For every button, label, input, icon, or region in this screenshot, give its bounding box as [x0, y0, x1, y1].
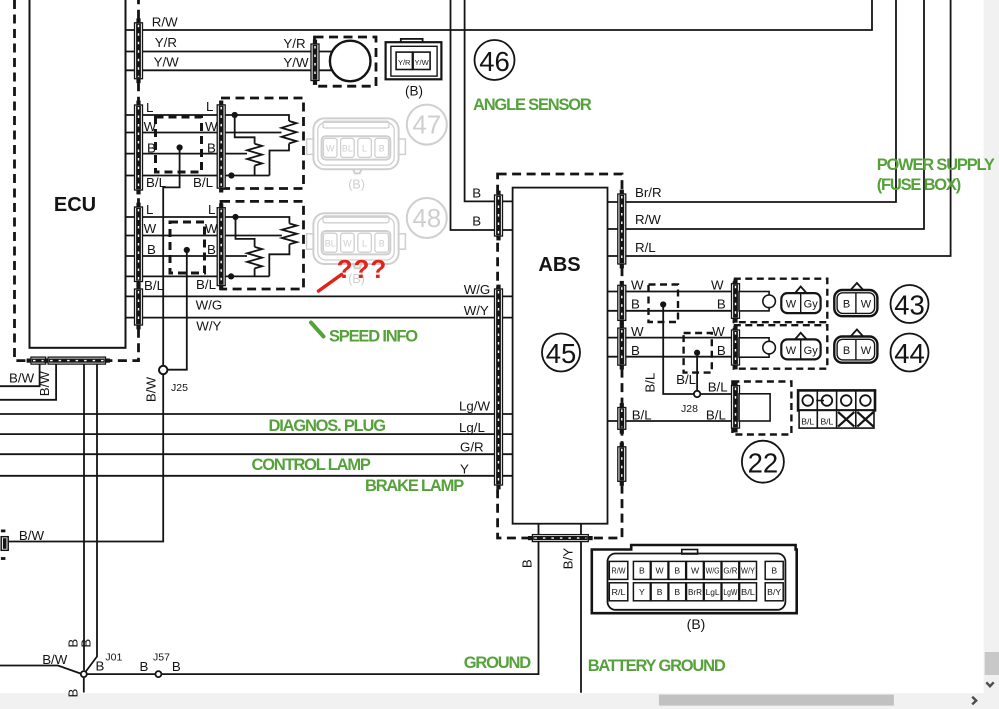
svg-text:W: W — [712, 324, 725, 339]
svg-text:B: B — [717, 343, 726, 358]
svg-text:G/R: G/R — [460, 440, 484, 455]
svg-text:B/L: B/L — [643, 373, 658, 393]
svg-text:W/G: W/G — [464, 282, 491, 297]
svg-text:B/W: B/W — [42, 652, 68, 667]
svg-text:W: W — [691, 566, 700, 576]
svg-text:ABS: ABS — [538, 254, 580, 276]
svg-text:B: B — [207, 242, 216, 257]
svg-text:B: B — [674, 566, 680, 576]
svg-text:ANGLE SENSOR: ANGLE SENSOR — [473, 96, 592, 114]
svg-text:(B): (B) — [405, 84, 423, 99]
svg-text:B: B — [172, 659, 181, 674]
svg-text:B/W: B/W — [19, 528, 45, 543]
svg-text:W: W — [144, 119, 157, 134]
svg-text:W: W — [326, 144, 335, 154]
svg-text:BATTERY GROUND: BATTERY GROUND — [588, 657, 726, 675]
svg-text:L: L — [362, 239, 367, 249]
svg-text:44: 44 — [894, 338, 925, 369]
svg-text:B: B — [147, 242, 156, 257]
svg-text:B/Y: B/Y — [560, 548, 575, 570]
svg-text:W: W — [861, 299, 872, 311]
svg-text:B: B — [140, 659, 149, 674]
svg-text:B: B — [843, 299, 850, 311]
svg-text:B/L: B/L — [708, 380, 728, 395]
svg-text:B: B — [379, 144, 385, 154]
svg-text:W/G: W/G — [706, 566, 720, 576]
svg-text:(B): (B) — [348, 177, 365, 191]
svg-text:B: B — [207, 141, 216, 156]
svg-text:B/L: B/L — [801, 417, 814, 427]
svg-text:B: B — [657, 587, 663, 597]
svg-text:R/W: R/W — [635, 212, 661, 227]
svg-text:B: B — [66, 688, 81, 697]
svg-text:W: W — [786, 345, 797, 357]
svg-text:Gy: Gy — [804, 299, 819, 311]
svg-text:B: B — [519, 559, 534, 568]
svg-text:B/W: B/W — [37, 371, 52, 397]
svg-text:43: 43 — [894, 289, 925, 320]
svg-text:B: B — [717, 297, 726, 312]
svg-text:CONTROL LAMP: CONTROL LAMP — [252, 456, 371, 474]
svg-text:L: L — [146, 202, 153, 217]
svg-text:B: B — [379, 239, 385, 249]
svg-text:BRAKE LAMP: BRAKE LAMP — [365, 477, 464, 495]
svg-text:Y/W: Y/W — [154, 55, 180, 70]
svg-text:Y: Y — [639, 587, 645, 597]
svg-text:Y/W: Y/W — [283, 55, 309, 70]
svg-text:Br/R: Br/R — [635, 185, 662, 200]
svg-text:L: L — [146, 100, 153, 115]
svg-text:B: B — [96, 659, 105, 674]
svg-text:W: W — [711, 278, 724, 293]
svg-text:W/G: W/G — [196, 298, 223, 313]
svg-text:B/L: B/L — [193, 175, 213, 190]
svg-text:B/W: B/W — [144, 376, 159, 402]
svg-text:B: B — [639, 566, 645, 576]
svg-text:B/L: B/L — [706, 408, 726, 423]
svg-text:LgW: LgW — [723, 587, 738, 597]
svg-text:BL: BL — [342, 144, 353, 154]
svg-text:W: W — [205, 221, 218, 236]
svg-text:B: B — [472, 186, 481, 201]
svg-text:B/W: B/W — [9, 370, 35, 385]
svg-text:22: 22 — [748, 448, 779, 479]
svg-text:L: L — [362, 144, 367, 154]
svg-text:G/R: G/R — [723, 566, 737, 576]
svg-text:B/Y: B/Y — [767, 587, 781, 597]
svg-text:B/L: B/L — [144, 278, 164, 293]
svg-text:J28: J28 — [681, 403, 698, 415]
svg-text:B/L: B/L — [820, 417, 833, 427]
svg-text:W: W — [343, 239, 352, 249]
svg-text:B/L: B/L — [632, 408, 652, 423]
svg-text:B: B — [147, 141, 156, 156]
svg-text:Gy: Gy — [804, 345, 819, 357]
svg-text:B/L: B/L — [676, 372, 696, 387]
svg-text:W: W — [205, 119, 218, 134]
svg-text:W: W — [144, 221, 157, 236]
svg-text:Y/R: Y/R — [155, 35, 177, 50]
svg-text:Lg/W: Lg/W — [459, 399, 490, 414]
svg-text:B/L: B/L — [741, 587, 755, 597]
svg-text:R/L: R/L — [612, 587, 626, 597]
svg-text:48: 48 — [412, 203, 441, 233]
svg-text:R/W: R/W — [612, 566, 627, 576]
svg-text:B: B — [674, 587, 680, 597]
svg-text:Lg/L: Lg/L — [459, 420, 485, 435]
svg-text:Y: Y — [460, 461, 469, 476]
svg-text:BrR: BrR — [688, 587, 702, 597]
svg-text:B/L: B/L — [196, 277, 216, 292]
svg-text:L: L — [206, 99, 213, 114]
svg-text:SPEED INFO: SPEED INFO — [329, 328, 418, 346]
svg-text:B/L: B/L — [146, 175, 166, 190]
svg-text:W/Y: W/Y — [464, 303, 489, 318]
svg-text:47: 47 — [412, 110, 441, 140]
svg-text:GROUND: GROUND — [464, 654, 531, 672]
svg-text:W: W — [861, 345, 872, 357]
svg-text:W: W — [631, 324, 644, 339]
svg-text:???: ??? — [337, 254, 388, 284]
svg-text:ECU: ECU — [54, 194, 96, 216]
svg-text:46: 46 — [479, 46, 510, 77]
svg-text:W/Y: W/Y — [196, 319, 221, 334]
svg-text:LgL: LgL — [706, 587, 720, 597]
svg-text:B: B — [472, 213, 481, 228]
svg-text:W/Y: W/Y — [741, 566, 755, 576]
svg-text:W: W — [786, 299, 797, 311]
svg-text:45: 45 — [546, 338, 577, 369]
svg-text:J57: J57 — [153, 652, 170, 664]
svg-text:BL: BL — [325, 239, 336, 249]
svg-text:B: B — [771, 566, 777, 576]
svg-text:B: B — [843, 345, 850, 357]
svg-text:Y/R: Y/R — [398, 58, 411, 67]
svg-text:B: B — [631, 297, 640, 312]
svg-text:POWER SUPPLY: POWER SUPPLY — [877, 156, 995, 174]
svg-text:Y/R: Y/R — [283, 36, 305, 51]
svg-text:W: W — [631, 278, 644, 293]
svg-text:Y/W: Y/W — [415, 58, 430, 67]
svg-text:(B): (B) — [687, 616, 706, 632]
svg-text:L: L — [208, 202, 215, 217]
svg-text:DIAGNOS. PLUG: DIAGNOS. PLUG — [269, 417, 386, 435]
svg-text:B: B — [79, 639, 94, 648]
svg-text:J25: J25 — [171, 382, 188, 394]
svg-text:(FUSE BOX): (FUSE BOX) — [877, 176, 961, 194]
svg-text:R/W: R/W — [152, 15, 178, 30]
svg-text:R/L: R/L — [635, 240, 656, 255]
svg-text:J01: J01 — [105, 652, 122, 664]
svg-text:B: B — [631, 343, 640, 358]
svg-text:W: W — [656, 566, 665, 576]
